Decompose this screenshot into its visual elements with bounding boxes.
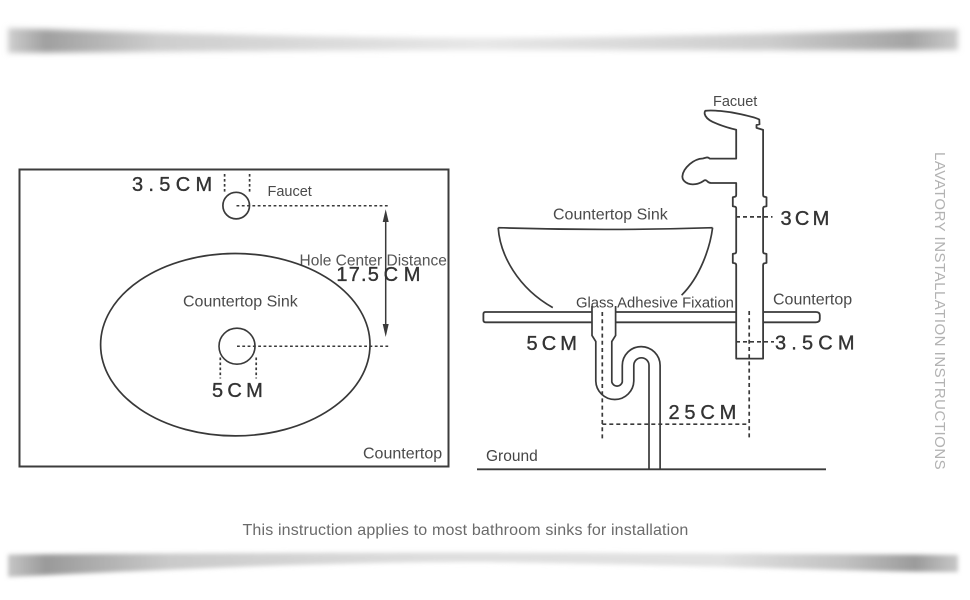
svg-text:25CM: 25CM <box>669 402 742 424</box>
svg-text:5CM: 5CM <box>212 380 267 402</box>
svg-text:Countertop: Countertop <box>773 292 852 309</box>
svg-text:Countertop: Countertop <box>363 446 442 463</box>
svg-text:LAVATORY INSTALLATION INSTRUCT: LAVATORY INSTALLATION INSTRUCTIONS <box>931 152 948 470</box>
svg-text:Countertop Sink: Countertop Sink <box>183 294 299 311</box>
svg-text:3.5CM: 3.5CM <box>775 333 860 355</box>
svg-text:17.5CM: 17.5CM <box>336 264 421 286</box>
svg-text:This instruction applies to mo: This instruction applies to most bathroo… <box>243 522 689 539</box>
svg-text:Facuet: Facuet <box>713 94 757 110</box>
svg-text:Ground: Ground <box>486 448 538 465</box>
svg-text:Glass Adhesive Fixation: Glass Adhesive Fixation <box>576 296 734 312</box>
svg-text:3.5CM: 3.5CM <box>132 174 217 196</box>
svg-text:5CM: 5CM <box>527 333 582 355</box>
svg-text:Faucet: Faucet <box>268 184 312 200</box>
svg-text:Countertop Sink: Countertop Sink <box>553 207 669 224</box>
svg-text:3CM: 3CM <box>781 208 833 230</box>
